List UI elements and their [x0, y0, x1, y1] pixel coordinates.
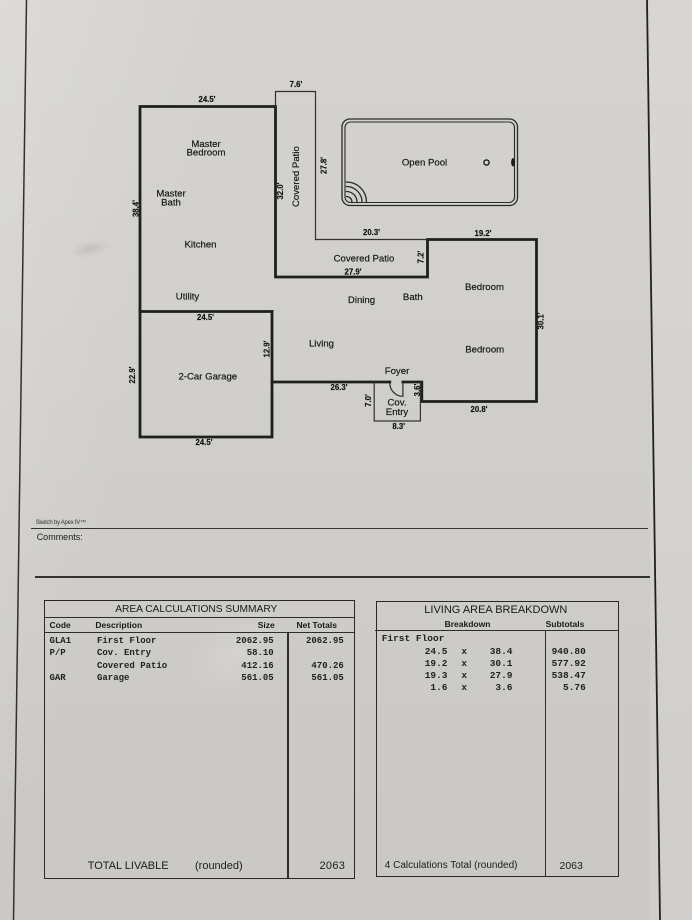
- svg-text:Entry: Entry: [386, 407, 409, 418]
- svg-text:Open Pool: Open Pool: [402, 158, 447, 169]
- svg-text:12.9': 12.9': [262, 340, 271, 357]
- svg-text:8.3': 8.3': [392, 422, 405, 431]
- svg-text:22.9': 22.9': [128, 366, 137, 383]
- svg-text:26.3': 26.3': [330, 383, 347, 392]
- svg-text:Bedroom: Bedroom: [187, 148, 226, 159]
- svg-text:20.8': 20.8': [470, 405, 487, 414]
- svg-text:32.0': 32.0': [276, 182, 285, 199]
- svg-text:Living: Living: [309, 339, 334, 350]
- svg-text:38.4': 38.4': [132, 200, 141, 217]
- svg-text:24.5': 24.5': [198, 95, 215, 104]
- svg-text:Bath: Bath: [161, 198, 181, 209]
- svg-text:2-Car Garage: 2-Car Garage: [178, 372, 237, 383]
- svg-text:27.9': 27.9': [344, 267, 361, 276]
- svg-text:Bedroom: Bedroom: [465, 345, 504, 356]
- svg-text:7.6': 7.6': [290, 80, 303, 89]
- svg-text:Foyer: Foyer: [385, 366, 410, 377]
- svg-text:Covered Patio: Covered Patio: [291, 146, 302, 207]
- svg-text:7.2': 7.2': [417, 251, 426, 264]
- svg-text:Utility: Utility: [176, 292, 200, 303]
- svg-text:19.2': 19.2': [474, 229, 491, 238]
- svg-text:Dining: Dining: [348, 295, 375, 306]
- svg-text:24.5': 24.5': [195, 438, 212, 447]
- svg-text:20.3': 20.3': [363, 228, 380, 237]
- svg-text:24.5': 24.5': [197, 313, 214, 322]
- svg-text:Kitchen: Kitchen: [185, 240, 217, 251]
- svg-text:27.8': 27.8': [320, 157, 329, 174]
- svg-text:Bedroom: Bedroom: [465, 282, 504, 293]
- svg-text:7.0': 7.0': [364, 394, 373, 407]
- svg-text:Covered Patio: Covered Patio: [334, 254, 395, 265]
- svg-text:30.1': 30.1': [537, 312, 546, 329]
- svg-text:3.6': 3.6': [413, 384, 422, 397]
- svg-text:Bath: Bath: [403, 292, 423, 303]
